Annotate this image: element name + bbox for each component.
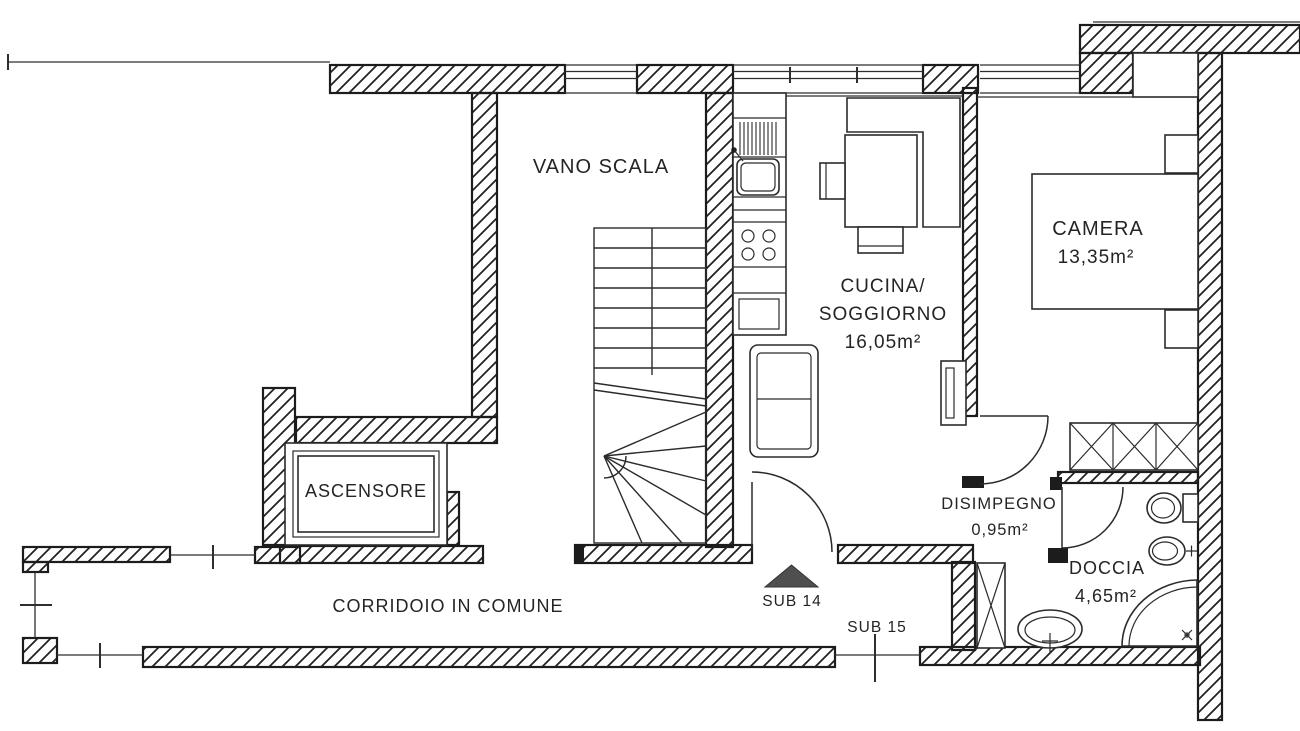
window-stairwell <box>565 65 637 93</box>
chair-left <box>820 163 845 199</box>
label-disimpegno: DISIMPEGNO <box>941 495 1056 513</box>
dining-set <box>820 98 960 253</box>
toilet <box>1147 493 1198 523</box>
sofa <box>750 345 818 457</box>
label-doccia-area: 4,65m² <box>1075 586 1137 606</box>
label-corridoio: CORRIDOIO IN COMUNE <box>332 596 563 616</box>
label-camera-area: 13,35m² <box>1058 247 1135 268</box>
jamb <box>574 545 584 563</box>
label-cucina-line1: CUCINA/ <box>840 276 925 297</box>
jamb <box>962 476 984 488</box>
label-cucina-line2: SOGGIORNO <box>819 304 947 325</box>
stair-break-line <box>594 390 706 406</box>
jamb <box>1048 548 1068 563</box>
apartment-south-wall-east <box>838 545 973 563</box>
corridor-north-wall-left-step <box>23 562 48 572</box>
bed <box>1032 174 1198 309</box>
label-ascensore: ASCENSORE <box>305 481 427 501</box>
radiator <box>941 361 966 425</box>
floor-plan-drawing: VANO SCALA CUCINA/ SOGGIORNO 16,05m² CAM… <box>0 0 1300 731</box>
corridor-north-wall-left <box>23 547 170 562</box>
kitchen-counter <box>731 93 786 335</box>
floor-plan-page: VANO SCALA CUCINA/ SOGGIORNO 16,05m² CAM… <box>0 0 1300 731</box>
entrance-door-sub14 <box>752 472 832 552</box>
jamb <box>1050 477 1062 490</box>
elevator-right-wall <box>447 492 459 545</box>
bidet-tap-icon <box>1186 546 1197 557</box>
building-south-wall-west <box>143 647 835 667</box>
label-disimpegno-area: 0,95m² <box>971 521 1028 539</box>
window-bedroom <box>980 65 1080 93</box>
bedroom-south-wall <box>1058 472 1198 483</box>
apartment-south-wall-west <box>575 545 752 563</box>
elevator-bottom-wall <box>280 546 483 563</box>
elevator-top-wall <box>296 417 497 443</box>
building-south-wall-east <box>920 647 1200 665</box>
chair-bottom <box>858 227 903 253</box>
corridor-corner-block <box>23 638 57 663</box>
nightstand-bottom <box>1165 310 1198 348</box>
exterior-wall-top-b <box>637 65 733 93</box>
wardrobe <box>1070 423 1198 470</box>
exterior-wall-topright-step <box>1080 53 1133 93</box>
staircase <box>594 228 706 543</box>
window-kitchen <box>733 65 923 93</box>
nightstand-top <box>1165 135 1198 173</box>
label-cucina-area: 16,05m² <box>845 332 922 353</box>
entrance-triangle-marker <box>765 565 818 587</box>
dining-table <box>845 135 917 227</box>
bidet <box>1149 537 1197 565</box>
exterior-wall-topright-band <box>1080 25 1300 53</box>
label-doccia: DOCCIA <box>1069 558 1145 578</box>
boundary-lines <box>8 22 1300 682</box>
duct-shaft <box>977 563 1005 648</box>
stair-break-line <box>594 383 706 399</box>
stair-winders <box>604 412 706 543</box>
bathroom-door <box>1062 487 1123 548</box>
exterior-wall-top-a <box>330 65 565 93</box>
label-camera: CAMERA <box>1052 218 1144 240</box>
bedroom-furniture <box>1032 135 1198 470</box>
label-sub-14: SUB 14 <box>762 593 821 610</box>
stairwell-kitchen-wall <box>706 93 733 547</box>
label-sub-15: SUB 15 <box>847 619 906 636</box>
exterior-wall-right <box>1198 53 1222 720</box>
walls <box>23 25 1300 720</box>
wall-niche <box>1133 53 1198 97</box>
bedroom-door <box>980 416 1048 484</box>
stairwell-left-wall <box>472 93 497 417</box>
label-vano-scala: VANO SCALA <box>533 156 669 178</box>
corridor-north-wall-mid <box>255 547 300 563</box>
shower-west-wall <box>952 562 975 650</box>
